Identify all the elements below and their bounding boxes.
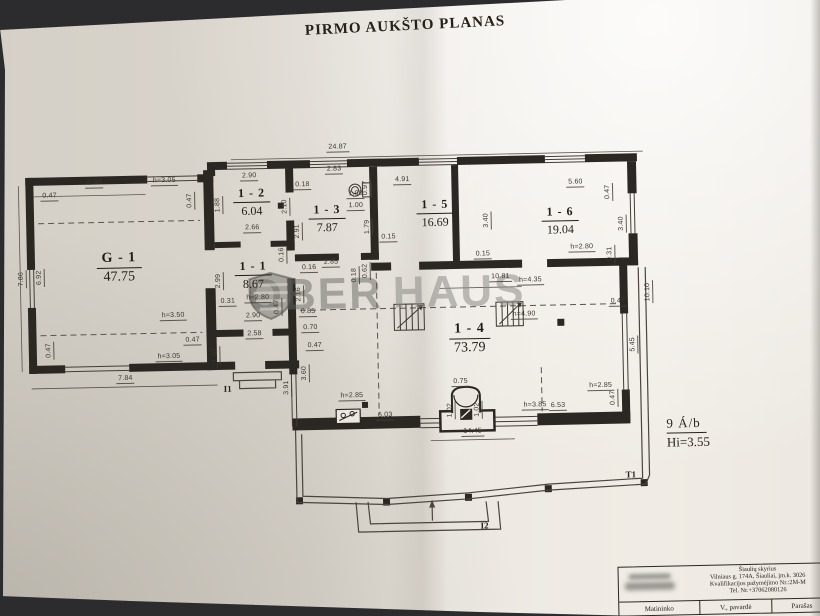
dimension-label: 2.85 (322, 258, 341, 267)
room-label: 1 - 473.79 (449, 321, 490, 357)
dimension-label: 2.83 (325, 165, 344, 174)
building-height: Hi=3.55 (667, 433, 710, 451)
room-label: 1 - 516.69 (416, 197, 454, 231)
room-label: 1 - 37.87 (308, 202, 346, 236)
dimension-label: 24.87 (326, 143, 349, 152)
dimension-label: 0.47 (40, 192, 59, 201)
dimension-label: 0.15 (474, 250, 493, 259)
logo-blur-mark (625, 582, 675, 591)
surveyor-details: Šiaulių skyrius Vilniaus g. 174A, Šiauli… (684, 563, 820, 600)
dimension-label: 6.90 (85, 179, 104, 188)
dimension-label: 1.88 (214, 196, 223, 215)
cell-surveyor: Matininko (619, 601, 700, 616)
dimension-label: 1.79 (364, 218, 373, 237)
dimension-label: 0.47 (305, 342, 324, 351)
room-label: G - 147.75 (96, 250, 141, 286)
dimension-label: 5.60 (566, 178, 585, 187)
dimension-label: 1.00 (346, 190, 365, 199)
dimension-label: 5.45 (629, 335, 638, 354)
dimension-label: 2.91 (294, 222, 303, 241)
dimension-label: 1.00 (347, 202, 366, 211)
dimension-label: h=3.05 (155, 353, 182, 363)
dimension-label: 6.03 (376, 411, 395, 420)
dimension-label: 6.92 (36, 268, 45, 287)
dimension-label: 2.10 (281, 197, 290, 216)
dimension-label: h=2.85 (338, 392, 365, 402)
floorplan: PIRMO AUKŠTO PLANAS (0, 0, 820, 616)
dimension-label: 0.47 (45, 341, 54, 360)
agency-watermark: OBER HAUS (247, 266, 526, 322)
logo-blur-mark (629, 574, 671, 580)
dimension-label: 6.53 (549, 402, 568, 411)
title-block-top: Šiaulių skyrius Vilniaus g. 174A, Šiauli… (618, 563, 820, 601)
dimension-label: 1.02 (473, 400, 482, 419)
room-label: 1 - 18.67 (234, 258, 272, 292)
dimension-label: 0.47 (604, 183, 613, 202)
dimension-label: h=2.80 (568, 243, 595, 253)
dimension-label: 0.15 (379, 233, 398, 242)
dimension-label: 0.31 (219, 298, 238, 307)
dimension-label: 0.16 (278, 245, 287, 264)
dimension-label: 3.91 (283, 378, 292, 397)
dimension-label: 0.47 (273, 297, 282, 316)
dimension-label: 0.75 (451, 378, 470, 387)
dimension-label: 7.84 (116, 375, 135, 384)
dimension-label: 0.18 (351, 266, 360, 285)
title-block: Šiaulių skyrius Vilniaus g. 174A, Šiauli… (617, 562, 820, 616)
cell-signature: Parašas (772, 598, 820, 612)
dimension-label: 1.67 (211, 346, 220, 365)
room-label: 1 - 26.04 (233, 185, 271, 219)
building-designation: 9 Á/b Hi=3.55 (666, 415, 710, 451)
cell-name: V., pavardė (700, 599, 773, 614)
dimension-label: 10.10 (644, 281, 653, 304)
room-label: 1 - 619.04 (541, 204, 579, 238)
dimension-label: h=2.80 (244, 294, 271, 304)
dimension-label: 2.66 (243, 224, 262, 233)
dimension-label: 0.31 (606, 244, 615, 263)
dimension-label: 0.47 (186, 191, 195, 210)
dimension-label: h=3.50 (160, 312, 187, 322)
dimension-label: 2.58 (245, 330, 264, 339)
surveyor-logo (618, 566, 685, 601)
dimension-label: 2.99 (215, 272, 224, 291)
dimension-label: h=3.05 (151, 177, 178, 187)
reference-mark: I1 (224, 384, 232, 394)
dimension-label: h=3.85 (522, 401, 549, 411)
dimension-label: 14.45 (461, 427, 484, 436)
dimension-label: 4.91 (393, 176, 412, 185)
dimension-label: 2.16 (295, 285, 304, 304)
dimension-label: 0.85 (299, 308, 318, 317)
dimension-label: 2.90 (244, 312, 263, 321)
dimension-label: 3.60 (301, 364, 310, 383)
dimension-label: h=4.90 (511, 310, 538, 320)
dimension-label: 0.70 (301, 324, 320, 333)
reference-mark: I2 (480, 520, 488, 530)
scanned-floorplan-photo: PIRMO AUKŠTO PLANAS (0, 0, 820, 616)
dimension-label: 0.16 (300, 264, 319, 273)
dimension-label: 0.62 (362, 262, 371, 281)
dimension-label: 0.47 (183, 336, 202, 345)
dimension-label: 2.90 (240, 172, 259, 181)
dimension-label: 7.86 (18, 270, 27, 289)
dimension-label: 10.81 (489, 273, 512, 282)
dimension-label: 3.40 (618, 214, 627, 233)
dimension-label: 0.47 (609, 297, 628, 306)
dimension-label: 0.18 (293, 181, 312, 190)
dimension-label: 0.47 (609, 388, 618, 407)
building-number: 9 Á/b (666, 415, 707, 434)
dimension-label: h=4.35 (517, 276, 544, 286)
meter-box-icon (336, 409, 360, 423)
reference-mark: T1 (625, 469, 636, 479)
dimension-label: 1.02 (446, 401, 455, 420)
dimension-label: 3.40 (482, 211, 491, 230)
